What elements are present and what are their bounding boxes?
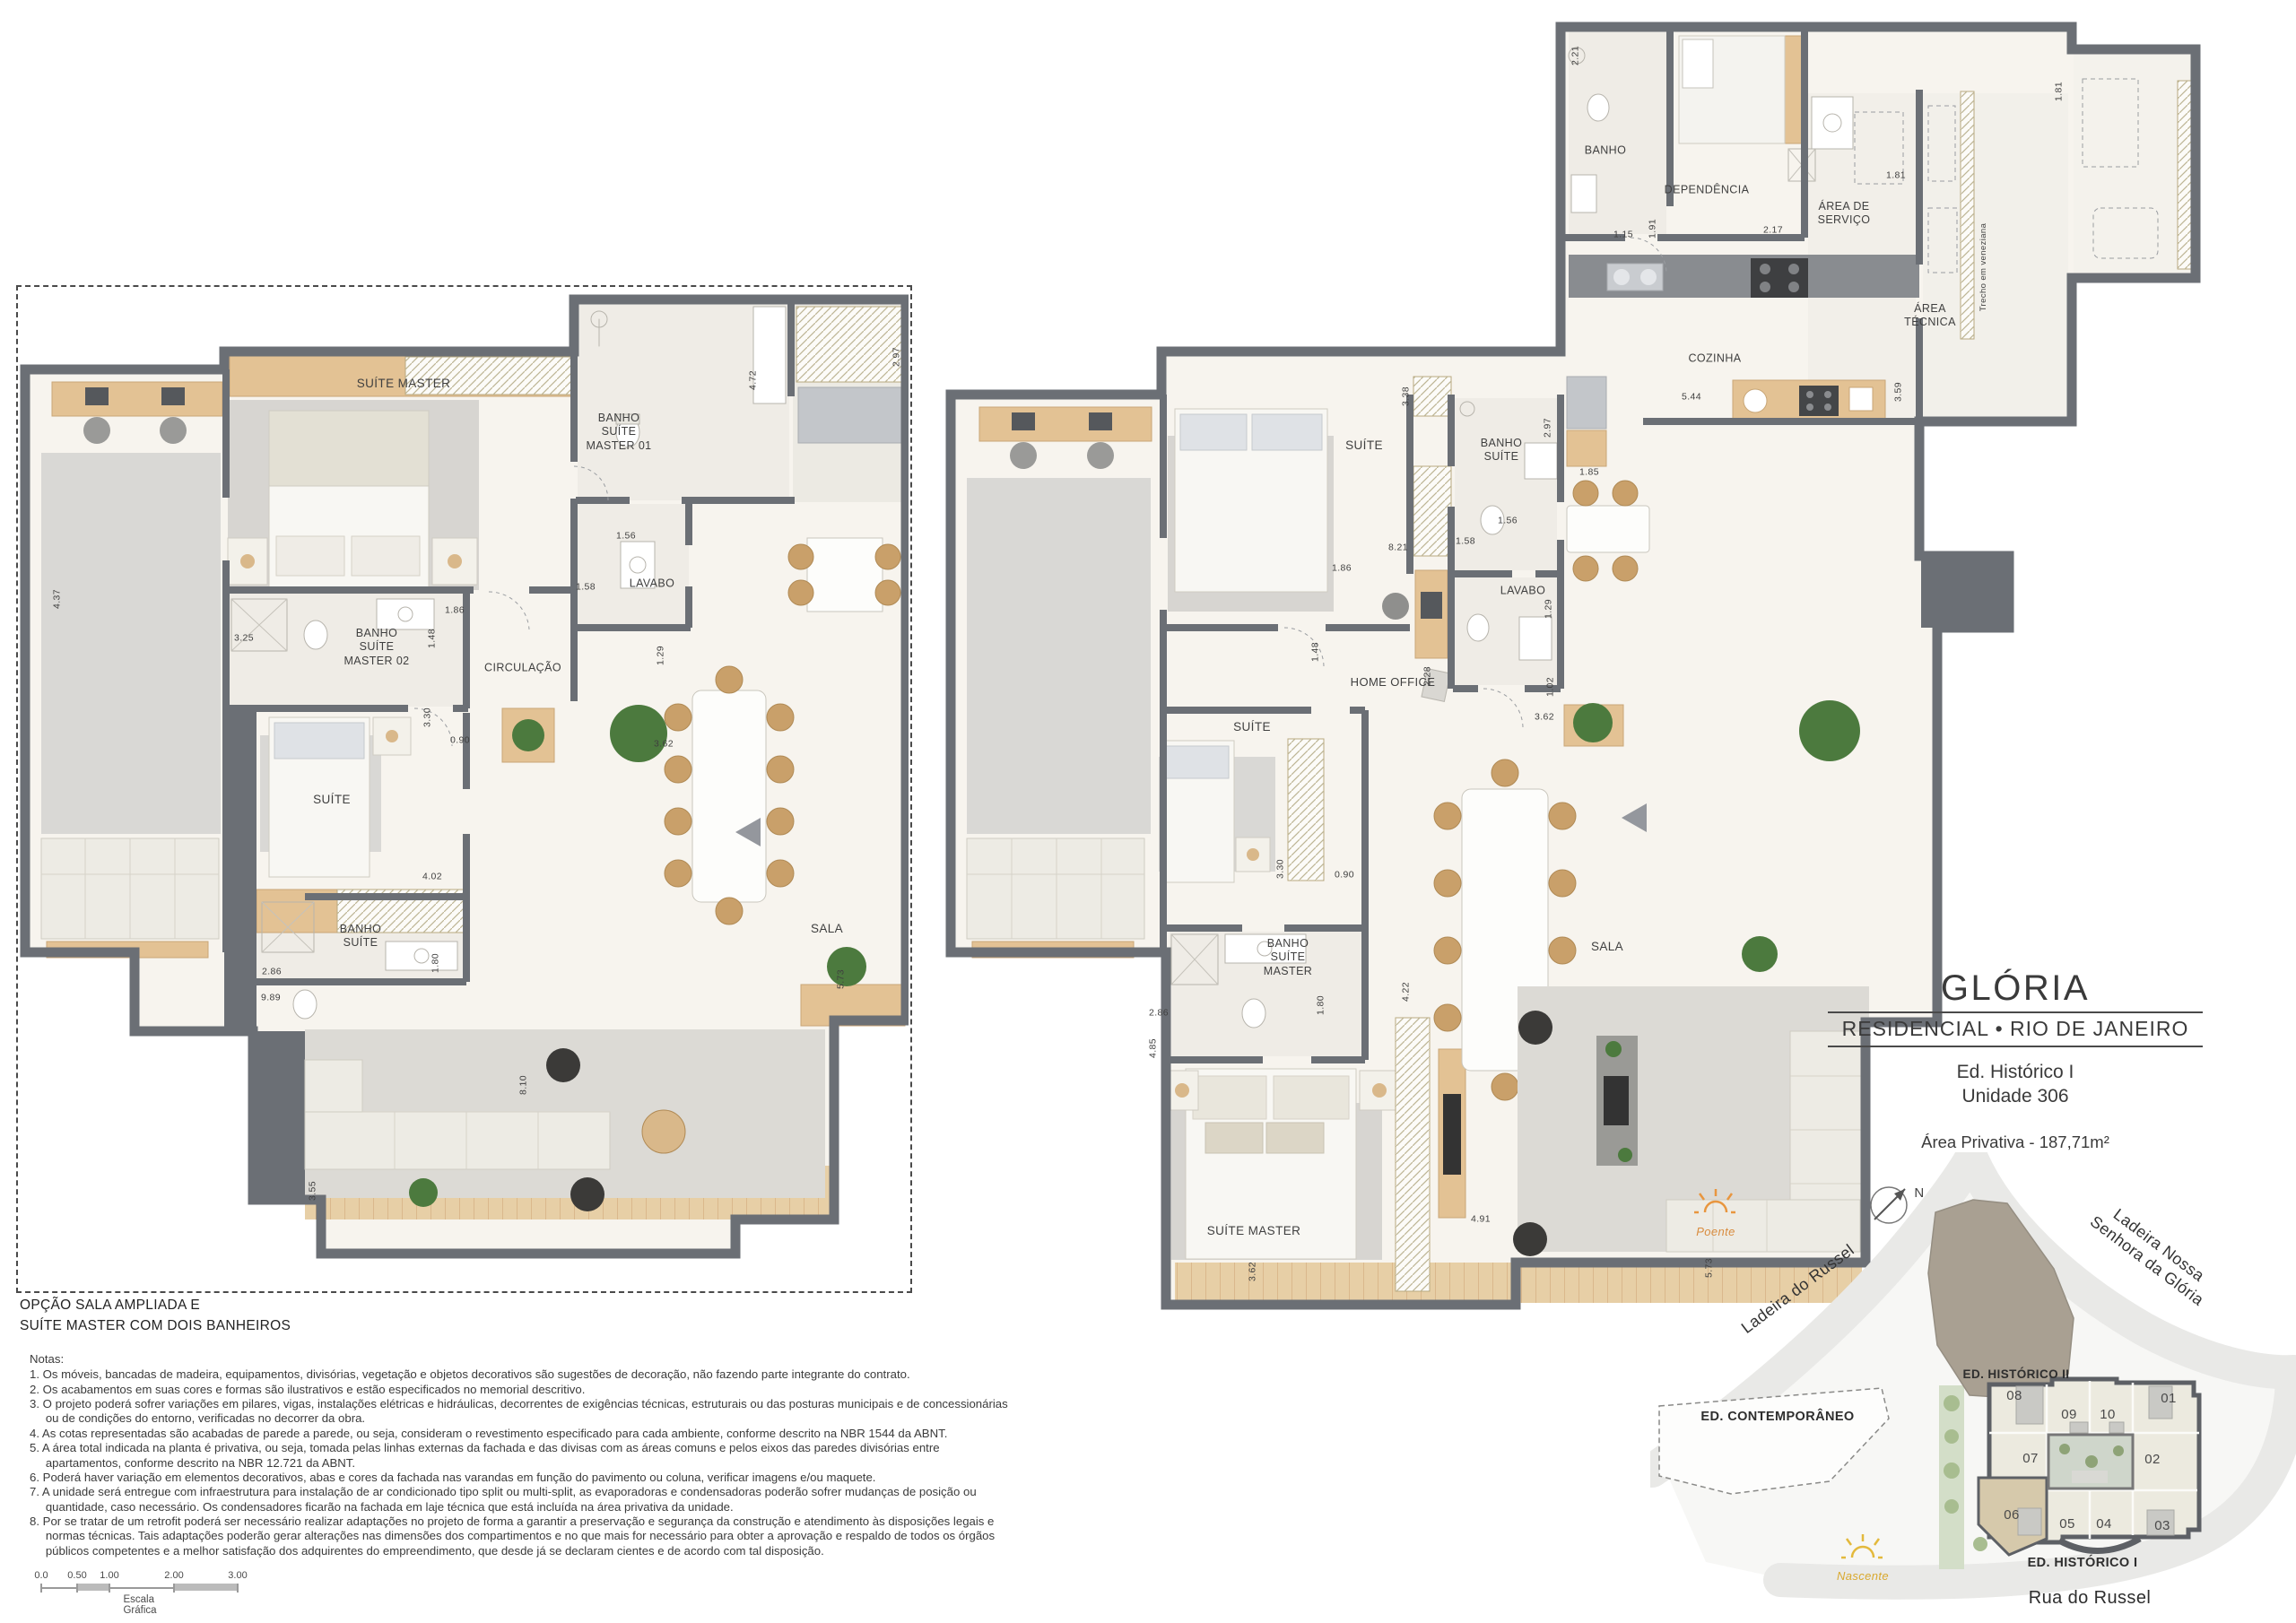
room-banho-suite: BANHO SUÍTE	[340, 923, 381, 950]
room-banho-suite-2: BANHO SUÍTE	[1481, 437, 1522, 464]
dim: 1.56	[1498, 516, 1518, 527]
title-rule	[1828, 1011, 2203, 1013]
compass-north-label: N	[1914, 1185, 1924, 1202]
sitemap-unit: 10	[2100, 1407, 2116, 1423]
scale-tick-mark	[76, 1584, 78, 1593]
option-caption-line1: OPÇÃO SALA AMPLIADA E	[20, 1295, 291, 1315]
dim: 4.02	[422, 872, 442, 883]
room-area-servico: ÁREA DE SERVIÇO	[1818, 200, 1871, 228]
dim: 8.10	[518, 1075, 530, 1095]
title-rule	[1828, 1046, 2203, 1047]
room-suite-master-2: SUÍTE MASTER	[1207, 1224, 1301, 1238]
note-item: 3. O projeto poderá sofrer variações em …	[30, 1397, 1014, 1427]
dim: 3.62	[1535, 712, 1554, 724]
dim: 3.30	[1275, 859, 1287, 879]
room-circulacao: CIRCULAÇÃO	[484, 661, 561, 674]
floorplan-sheet: SUÍTE MASTERBANHO SUÍTE MASTER 01LAVABOB…	[0, 0, 2296, 1623]
room-sala: SALA	[811, 922, 843, 936]
sitemap-building-ed-historico-1: ED. HISTÓRICO I	[2028, 1556, 2138, 1572]
sitemap-unit: 04	[2096, 1516, 2112, 1532]
dim: 4.37	[52, 589, 64, 609]
notes-heading: Notas:	[30, 1352, 1014, 1367]
note-item: 6. Poderá haver variação em elementos de…	[30, 1471, 1014, 1485]
dim: 2.86	[262, 967, 282, 978]
dim: 2.97	[891, 347, 903, 367]
room-banho-dependencia: BANHO	[1585, 143, 1626, 157]
room-lavabo: LAVABO	[630, 577, 675, 590]
room-suite: SUÍTE	[313, 793, 351, 807]
dim: 2.17	[1763, 225, 1783, 237]
room-dependencia: DEPENDÊNCIA	[1665, 183, 1750, 196]
option-caption: OPÇÃO SALA AMPLIADA E SUÍTE MASTER COM D…	[20, 1295, 291, 1337]
dim: 1.56	[616, 531, 636, 542]
dim: 5.73	[836, 969, 848, 989]
scale-tick-mark	[109, 1584, 110, 1593]
dim: 3.38	[1401, 386, 1413, 406]
notes-items: 1. Os móveis, bancadas de madeira, equip…	[30, 1367, 1014, 1558]
sitemap-unit-highlight: 06	[2004, 1507, 2020, 1523]
scale-tick-mark	[40, 1584, 42, 1593]
dim: 1.29	[656, 646, 667, 665]
sitemap-unit: 09	[2061, 1407, 2077, 1423]
dim: 0.90	[450, 735, 470, 747]
dim: 4.91	[1471, 1214, 1491, 1226]
dim: 2.97	[1543, 418, 1554, 438]
building-name: Ed. Histórico I	[1828, 1062, 2203, 1083]
dim: 5.44	[1682, 392, 1701, 404]
sitemap-building-ed-contemporaneo: ED. CONTEMPORÂNEO	[1700, 1410, 1854, 1426]
dim: 9.89	[261, 993, 281, 1004]
sitemap-unit: 08	[2006, 1388, 2022, 1404]
project-title: GLÓRIA	[1828, 968, 2203, 1009]
private-area: Área Privativa - 187,71m²	[1828, 1133, 2203, 1152]
scale-tick-label: 0.50	[67, 1570, 86, 1581]
annotation-veneziana: Trecho em veneziana	[1979, 223, 1989, 312]
room-area-tecnica: ÁREA TÉCNICA	[1904, 302, 1956, 330]
dim: 4.72	[748, 370, 760, 390]
dim: 2.21	[1570, 46, 1582, 65]
dim: 1.02	[1545, 677, 1557, 697]
dim: 1.85	[1579, 467, 1599, 479]
dim: 3.25	[234, 633, 254, 645]
dim: 1.48	[427, 629, 439, 648]
note-item: 4. As cotas representadas são acabadas d…	[30, 1427, 1014, 1441]
note-item: 8. Por se tratar de um retrofit poderá s…	[30, 1515, 1014, 1558]
dim: 2.86	[1149, 1008, 1169, 1020]
scale-tick-label: 2.00	[164, 1570, 183, 1581]
sitemap-sun-nascente-label: Nascente	[1837, 1569, 1889, 1584]
scale-tick-label: 1.00	[100, 1570, 118, 1581]
sitemap-street-ladeira-do-russel: Ladeira do Russel	[1738, 1241, 1859, 1339]
scale-bar-label: Escala Gráfica	[123, 1594, 156, 1616]
scale-tick-label: 0.0	[34, 1570, 48, 1581]
dim: 4.85	[1148, 1038, 1160, 1058]
room-suite-2: SUÍTE	[1345, 438, 1383, 453]
unit-number: Unidade 306	[1828, 1086, 2203, 1107]
dim: 8.21	[1388, 542, 1408, 554]
room-banho-suite-master: BANHO SUÍTE MASTER	[1264, 937, 1313, 978]
scale-bar-segment	[174, 1584, 238, 1591]
sitemap-sun-poente-label: Poente	[1696, 1225, 1735, 1239]
note-item: 5. A área total indicada na planta é pri…	[30, 1441, 1014, 1471]
room-banho-suite-master-02: BANHO SUÍTE MASTER 02	[344, 627, 409, 668]
dim: 0.90	[1335, 870, 1354, 881]
scale-bar-segment	[77, 1584, 109, 1591]
dim: 1.80	[430, 953, 442, 973]
note-item: 2. Os acabamentos em suas cores e formas…	[30, 1383, 1014, 1397]
dim: 1.48	[1310, 642, 1322, 662]
dim: 1.80	[1316, 995, 1327, 1015]
dim: 1.81	[1886, 170, 1906, 182]
room-suite-master: SUÍTE MASTER	[357, 377, 451, 391]
room-cozinha: COZINHA	[1688, 352, 1741, 365]
dim: 1.58	[576, 582, 596, 594]
project-subtitle: RESIDENCIAL • RIO DE JANEIRO	[1828, 1015, 2203, 1044]
dim: 3.55	[308, 1181, 319, 1201]
scale-tick-mark	[173, 1584, 175, 1593]
dim: 3.30	[422, 707, 434, 727]
note-item: 7. A unidade será entregue com infraestr…	[30, 1485, 1014, 1515]
dim: 4.22	[1401, 982, 1413, 1002]
scale-tick-label: 3.00	[228, 1570, 247, 1581]
sitemap-street-ladeira-gloria: Ladeira Nossa Senhora da Glória	[2083, 1194, 2222, 1312]
sitemap-unit: 05	[2059, 1516, 2075, 1532]
dim: 5.73	[1704, 1258, 1716, 1278]
sitemap-unit: 01	[2161, 1391, 2177, 1407]
dim: 3.62	[1248, 1262, 1259, 1281]
dim: 1.15	[1613, 230, 1633, 241]
dim: 2.28	[1422, 666, 1434, 686]
sitemap-unit: 07	[2022, 1451, 2039, 1467]
note-item: 1. Os móveis, bancadas de madeira, equip…	[30, 1367, 1014, 1382]
scale-tick-mark	[237, 1584, 239, 1593]
sitemap-street-rua-do-russel: Rua do Russel	[2029, 1587, 2151, 1609]
title-block: GLÓRIA RESIDENCIAL • RIO DE JANEIRO Ed. …	[1828, 968, 2203, 1152]
sitemap-building-ed-historico-2: ED. HISTÓRICO II	[1963, 1367, 2070, 1382]
dim: 3.59	[1893, 382, 1905, 402]
option-caption-line2: SUÍTE MASTER COM DOIS BANHEIROS	[20, 1315, 291, 1336]
dim: 1.91	[1648, 219, 1659, 239]
dim: 3.62	[654, 739, 674, 751]
dim: 1.81	[2054, 82, 2066, 101]
notes-block: Notas: 1. Os móveis, bancadas de madeira…	[30, 1352, 1014, 1558]
sitemap-unit: 03	[2154, 1518, 2170, 1534]
room-lavabo-2: LAVABO	[1500, 584, 1546, 597]
sitemap-unit: 02	[2144, 1452, 2161, 1468]
dim: 1.58	[1456, 536, 1475, 548]
dim: 1.29	[1544, 599, 1555, 619]
room-sala-2: SALA	[1591, 940, 1623, 954]
room-suite-3: SUÍTE	[1233, 720, 1271, 734]
dim: 1.86	[445, 605, 465, 617]
dim: 1.86	[1332, 563, 1352, 575]
room-banho-suite-master-01: BANHO SUÍTE MASTER 01	[586, 412, 651, 453]
